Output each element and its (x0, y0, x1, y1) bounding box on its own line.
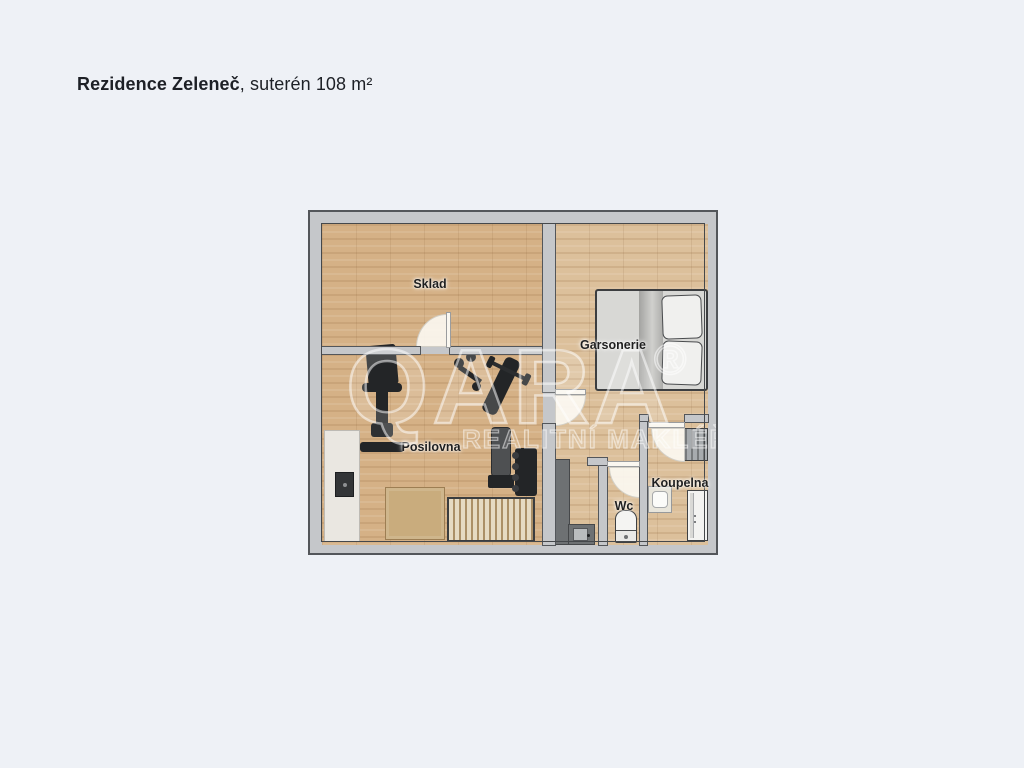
sink-basin (652, 491, 668, 508)
wall-sklad-left (322, 347, 420, 354)
rack-knob (512, 463, 519, 470)
room-label-wc: Wc (615, 499, 634, 513)
bench-base (488, 475, 514, 488)
wall-divider-top (543, 224, 555, 392)
floor-plan: Sklad Garsonerie Posilovna Wc Koupelna Q… (308, 210, 718, 555)
exercise-mat (385, 487, 445, 540)
property-name: Rezidence Zeleneč (77, 74, 240, 94)
toilet (615, 510, 637, 543)
door-leaf-koupelna (648, 422, 685, 428)
room-label-garsonerie: Garsonerie (580, 338, 646, 352)
wall-koupelna-top-left (640, 415, 648, 422)
press-bench (488, 427, 514, 489)
rack-knob (512, 452, 519, 459)
wall-wc-stub (588, 458, 607, 465)
wall-wc-left (599, 465, 607, 545)
faucet-dot (587, 534, 590, 537)
door-leaf-hall (555, 389, 586, 395)
shower (687, 490, 708, 541)
pillow (661, 294, 703, 339)
staircase (447, 497, 535, 542)
room-label-sklad: Sklad (413, 277, 446, 291)
boiler-unit (335, 472, 354, 497)
room-label-posilovna: Posilovna (401, 440, 460, 454)
wall-divider-bottom (543, 424, 555, 545)
machine-seat (371, 423, 393, 437)
floor-area-text: , suterén 108 m² (240, 74, 373, 94)
machine-base (360, 442, 404, 452)
pillow (661, 340, 703, 385)
gym-cable-machine (360, 337, 404, 459)
washing-machine (684, 428, 708, 461)
bathroom-sink (648, 486, 672, 513)
wall-sklad-right (450, 347, 543, 354)
kitchen-sink (568, 524, 595, 545)
rack-knob (512, 485, 519, 492)
flush-button (624, 535, 628, 539)
shower-handle (693, 514, 697, 524)
room-label-koupelna: Koupelna (652, 476, 709, 490)
wall-wc-koupelna (640, 422, 647, 545)
rack-knob (512, 474, 519, 481)
bench-pad (491, 427, 511, 477)
page-title: Rezidence Zeleneč, suterén 108 m² (77, 74, 372, 95)
door-leaf-wc (607, 461, 640, 467)
door-leaf-sklad (446, 312, 451, 348)
sink-tub (573, 528, 588, 541)
wall-koupelna-top-right (685, 415, 708, 422)
dumbbell-rack (515, 448, 537, 496)
